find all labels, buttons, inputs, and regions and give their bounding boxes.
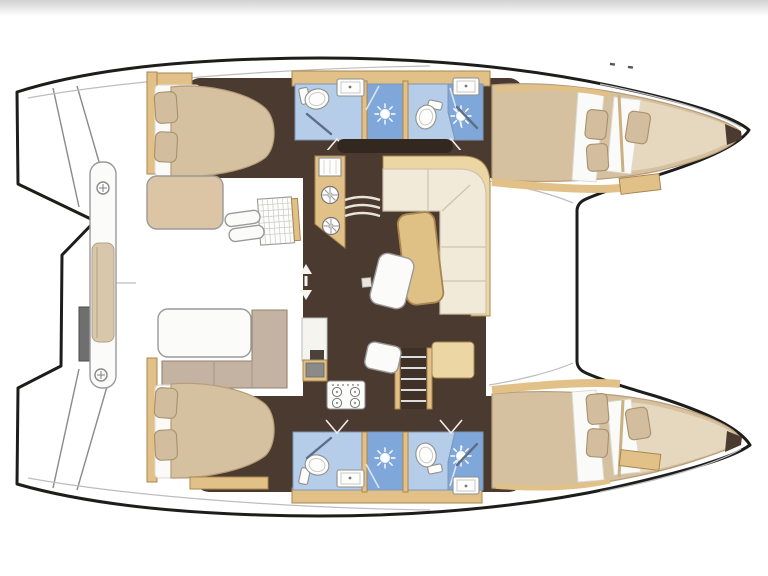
pillow: [586, 143, 609, 171]
sink-icon: [453, 477, 479, 494]
sink-icon: [453, 78, 479, 95]
catamaran-floorplan: [0, 0, 768, 576]
floorplan-image: [0, 0, 768, 576]
deck-ring-icon: [95, 369, 107, 381]
bathroom-wall: [403, 432, 408, 492]
pillow: [625, 110, 652, 144]
deck-ring-icon: [97, 182, 109, 194]
pillow: [154, 131, 178, 162]
sink-icon: [337, 470, 364, 487]
pillow: [154, 91, 178, 123]
shower-sun-icon: [451, 106, 471, 126]
cockpit-table: [147, 176, 223, 229]
sink-icon: [337, 79, 364, 96]
slatted-locker: [257, 196, 300, 245]
round-sink-icon: [323, 218, 340, 235]
scan-shadow: [0, 0, 768, 16]
bench-cushion: [92, 243, 114, 342]
cockpit-sunpad: [158, 309, 251, 357]
bathroom-wall: [403, 81, 408, 141]
shower-sun-icon: [375, 448, 395, 468]
pillow: [625, 406, 652, 440]
deck-hatch-marks: [610, 63, 633, 69]
cabin-bottom-forward: [492, 383, 742, 489]
nav-cabinet: [432, 342, 474, 378]
floor-hatch: [362, 278, 372, 288]
pillow: [586, 393, 610, 425]
sideboard: [337, 139, 453, 153]
cabin-top-forward: [492, 84, 742, 195]
cabinet-inset: [310, 350, 324, 361]
shower-sun-icon: [375, 104, 395, 124]
pillow: [586, 428, 609, 457]
galley-sink-unit: [319, 158, 341, 176]
transom-locker: [79, 307, 90, 361]
pillow: [154, 387, 178, 418]
saloon: [300, 139, 490, 410]
bed-shelf: [190, 477, 268, 489]
pillow: [584, 109, 608, 140]
round-sink-icon: [322, 187, 339, 204]
stove: [327, 381, 365, 409]
pillow: [154, 429, 178, 460]
oven-door: [306, 363, 324, 377]
shower-sun-icon: [451, 446, 471, 466]
